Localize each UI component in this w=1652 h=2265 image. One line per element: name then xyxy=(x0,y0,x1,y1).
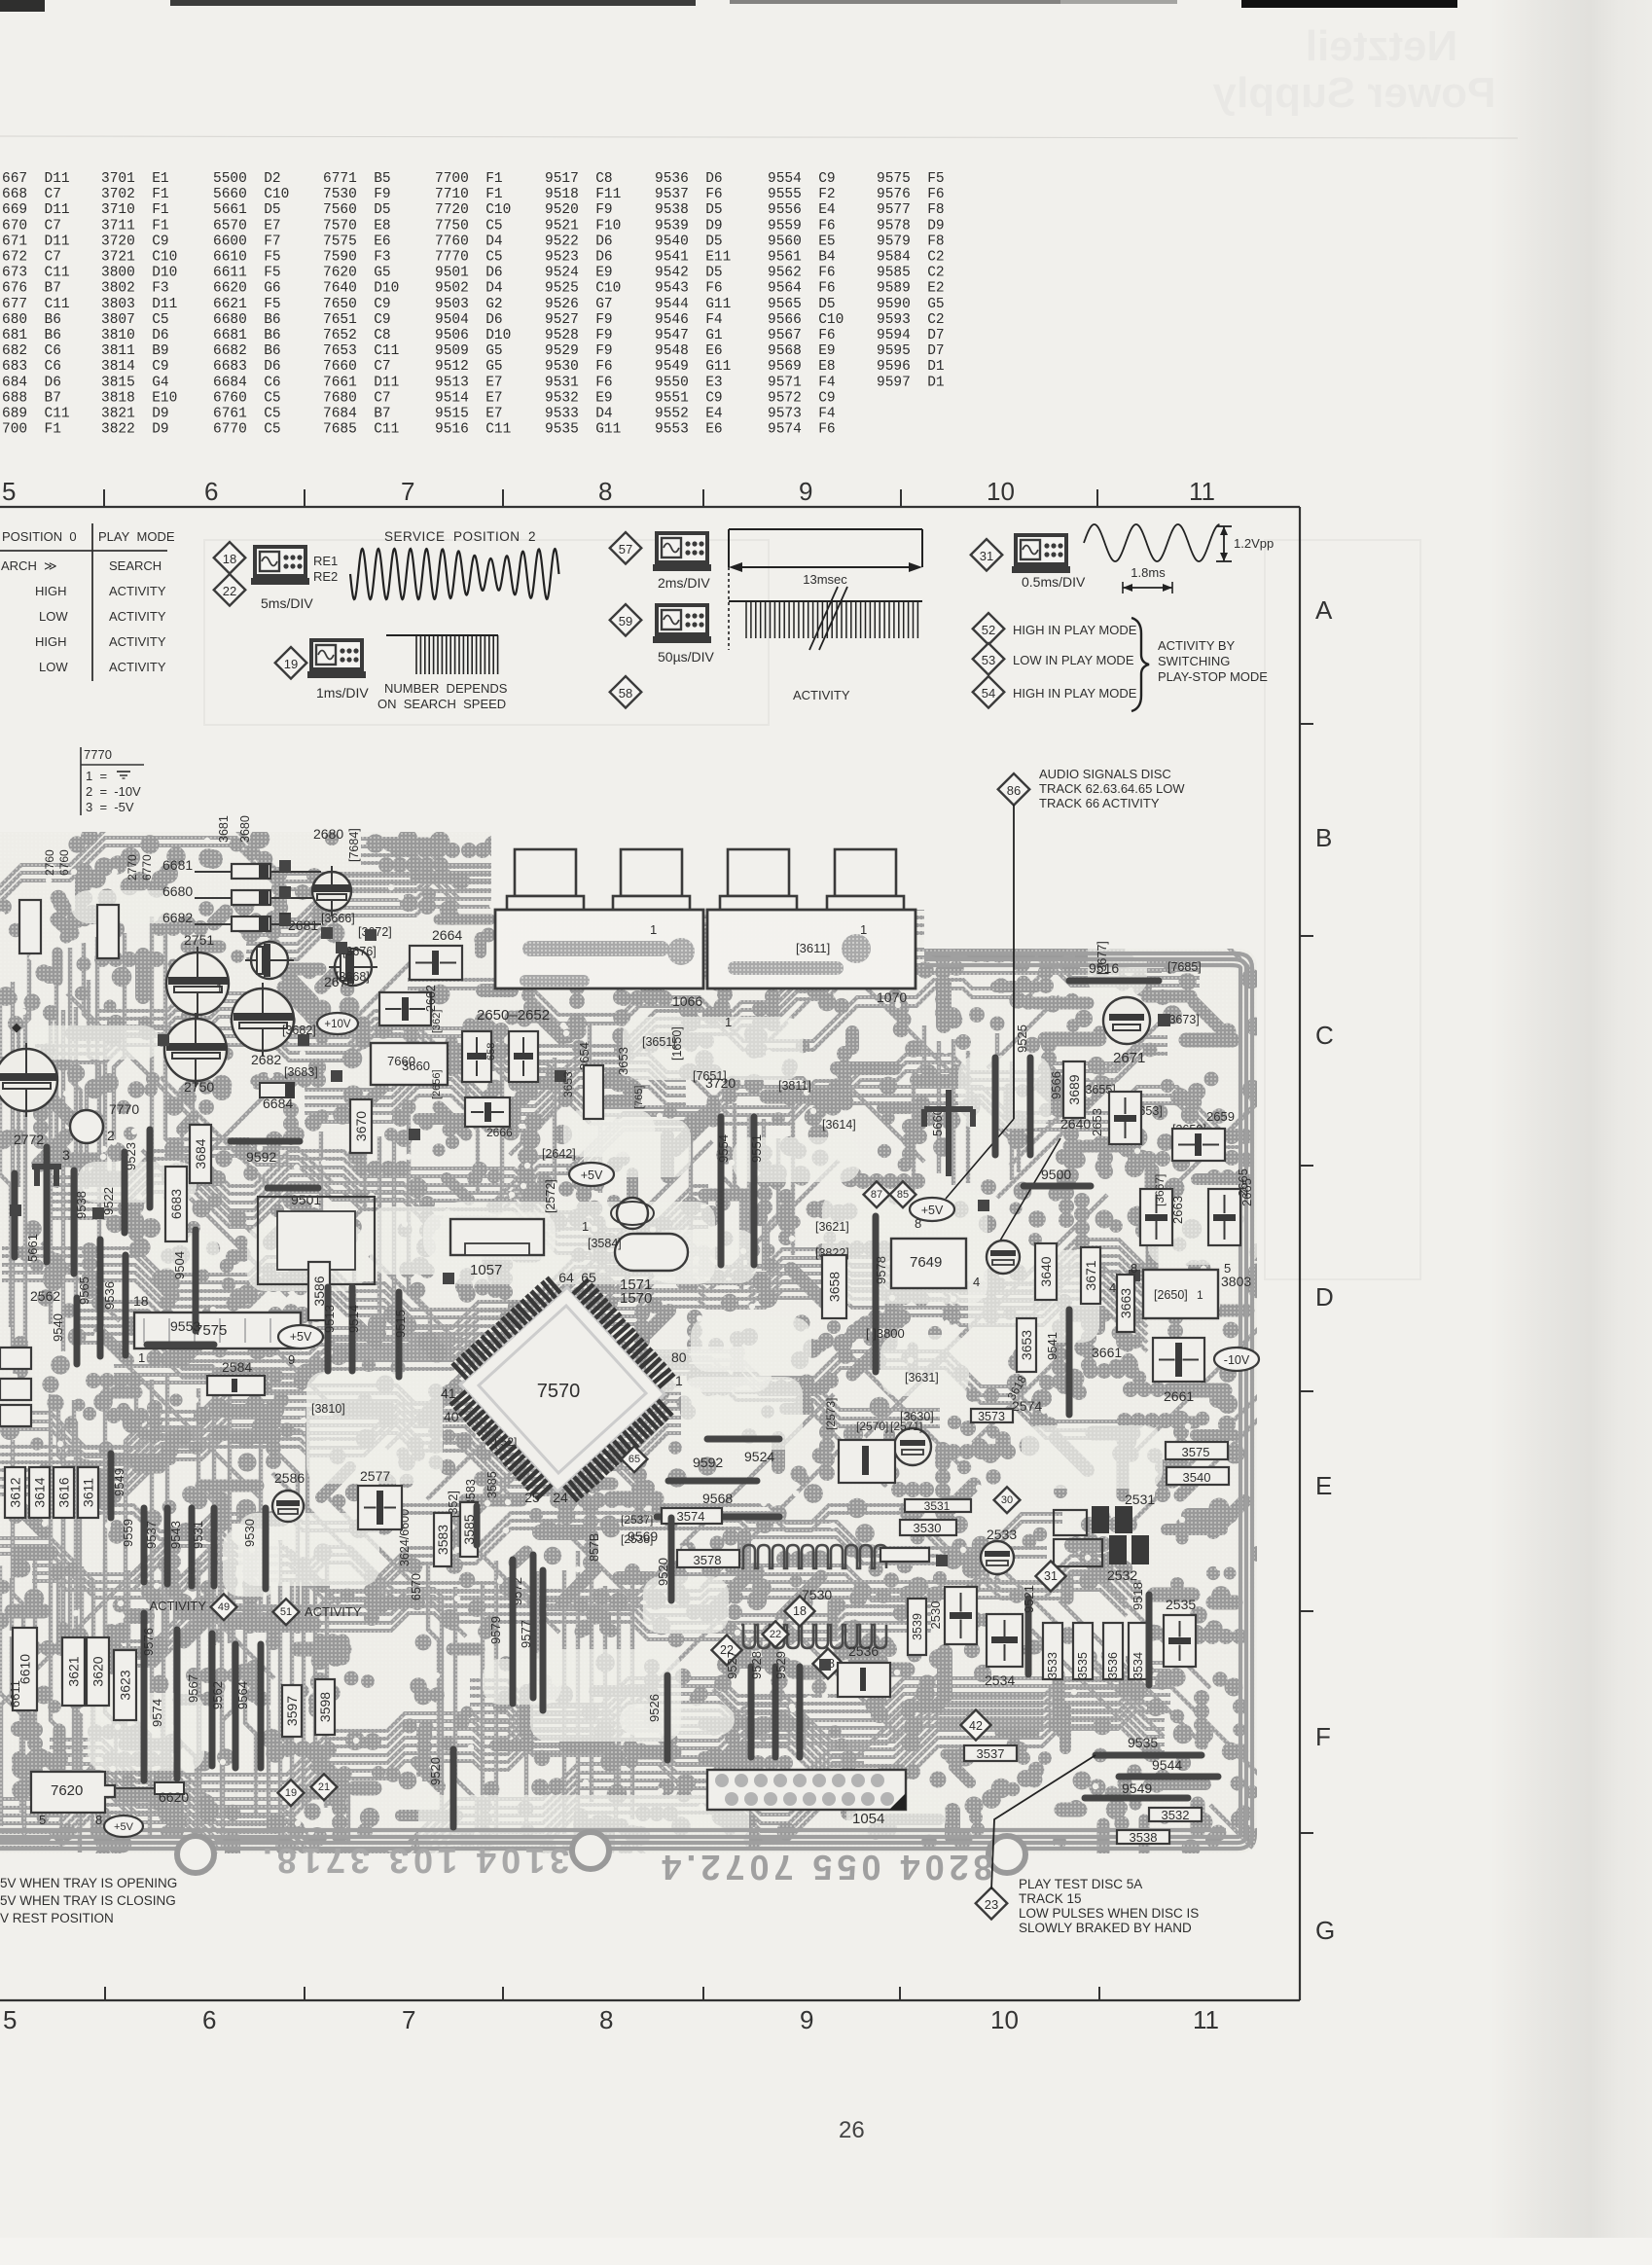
svg-text:2750: 2750 xyxy=(184,1079,214,1095)
svg-text:3530: 3530 xyxy=(914,1521,942,1535)
svg-text:3583: 3583 xyxy=(435,1525,450,1555)
svg-text:[3667]: [3667] xyxy=(1153,1174,1167,1206)
svg-text:6570: 6570 xyxy=(410,1573,423,1600)
svg-text:[3673]: [3673] xyxy=(1166,1013,1200,1026)
svg-text:1: 1 xyxy=(650,922,657,937)
svg-text:9549: 9549 xyxy=(1122,1780,1152,1796)
svg-text:TRACK 15: TRACK 15 xyxy=(1019,1891,1082,1906)
svg-text:2661: 2661 xyxy=(1164,1388,1194,1404)
svg-text:2 = -10V: 2 = -10V xyxy=(86,784,141,799)
svg-text:2671: 2671 xyxy=(1113,1050,1145,1066)
svg-text:[2571]: [2571] xyxy=(890,1420,922,1433)
svg-text:3720: 3720 xyxy=(705,1075,736,1091)
svg-text:9536 D69537 F69538 D59539: 9536 D69537 F69538 D59539 D99540 D59541 … xyxy=(655,171,731,438)
svg-text:RE2: RE2 xyxy=(313,569,338,584)
svg-text:18: 18 xyxy=(223,552,236,566)
svg-text:9554 C99555 F29556 E49559: 9554 C99555 F29556 E49559 F69560 E59561 … xyxy=(768,171,844,438)
svg-text:1: 1 xyxy=(216,981,223,995)
svg-text:6682: 6682 xyxy=(162,910,193,925)
svg-text:2532: 2532 xyxy=(1107,1567,1137,1583)
svg-text:+10V: +10V xyxy=(324,1019,351,1030)
svg-text:+5V: +5V xyxy=(581,1168,603,1182)
svg-text:C: C xyxy=(1315,1021,1334,1050)
svg-text:21: 21 xyxy=(318,1781,330,1793)
svg-text:9579: 9579 xyxy=(488,1616,503,1644)
svg-text:7649: 7649 xyxy=(910,1254,942,1271)
svg-text:5: 5 xyxy=(3,2005,17,2034)
svg-text:[3810]: [3810] xyxy=(311,1402,345,1416)
svg-text:5660: 5660 xyxy=(930,1108,945,1136)
svg-text:ACTIVITY: ACTIVITY xyxy=(109,609,166,624)
svg-text:2665: 2665 xyxy=(1236,1168,1250,1197)
svg-text:41: 41 xyxy=(441,1385,456,1401)
svg-text:1: 1 xyxy=(1197,1288,1203,1302)
svg-text:ACTIVITY: ACTIVITY xyxy=(109,660,166,674)
svg-text:2772: 2772 xyxy=(14,1132,44,1147)
svg-text:3621: 3621 xyxy=(66,1656,82,1686)
svg-text:3663: 3663 xyxy=(1118,1288,1133,1318)
svg-text:65: 65 xyxy=(581,1270,596,1285)
svg-text:51: 51 xyxy=(280,1606,292,1618)
svg-text:9578: 9578 xyxy=(874,1256,888,1284)
svg-text:-10V: -10V xyxy=(1224,1353,1250,1367)
svg-text:1: 1 xyxy=(675,1373,683,1388)
svg-text:9577: 9577 xyxy=(519,1620,533,1648)
svg-text:6760: 6760 xyxy=(57,849,71,876)
svg-text:SEARCH: SEARCH xyxy=(109,558,162,573)
svg-text:[2642]: [2642] xyxy=(542,1147,576,1161)
svg-text:3537: 3537 xyxy=(977,1746,1005,1761)
svg-text:2650–2652: 2650–2652 xyxy=(477,1007,550,1024)
svg-text:7620: 7620 xyxy=(51,1782,83,1799)
svg-text:3803: 3803 xyxy=(1221,1274,1251,1289)
svg-text:19: 19 xyxy=(285,1787,297,1799)
svg-text:52: 52 xyxy=(982,623,995,637)
svg-text:2530: 2530 xyxy=(928,1601,943,1630)
svg-text:LOW IN PLAY MODE: LOW IN PLAY MODE xyxy=(1013,653,1134,667)
svg-text:[2538]: [2538] xyxy=(621,1532,653,1546)
svg-text:2751: 2751 xyxy=(184,932,214,948)
svg-text:2682: 2682 xyxy=(251,1052,281,1067)
svg-text:[765]: [765] xyxy=(633,1086,645,1109)
svg-text:ACTIVITY: ACTIVITY xyxy=(793,688,850,702)
svg-text:667 D11668 C7669 D11670 C7: 667 D11668 C7669 D11670 C7671 D11672 C76… xyxy=(2,171,70,438)
svg-text:HIGH IN PLAY MODE: HIGH IN PLAY MODE xyxy=(1013,623,1137,637)
svg-text:[2572]: [2572] xyxy=(544,1179,557,1213)
svg-text:9518: 9518 xyxy=(1131,1582,1145,1610)
svg-text:9520: 9520 xyxy=(428,1757,443,1785)
svg-text:3661: 3661 xyxy=(1092,1345,1122,1360)
svg-text:9522: 9522 xyxy=(101,1187,116,1215)
svg-text:[3811]: [3811] xyxy=(778,1079,811,1093)
svg-text:[3668]: [3668] xyxy=(336,970,370,984)
svg-text:30: 30 xyxy=(1001,1494,1013,1506)
svg-text:49: 49 xyxy=(218,1601,230,1613)
svg-text:LOW: LOW xyxy=(39,660,68,674)
svg-text:HIGH: HIGH xyxy=(35,634,67,649)
svg-text:2562: 2562 xyxy=(30,1288,60,1304)
svg-text:9592: 9592 xyxy=(246,1149,276,1165)
svg-text:[3614]: [3614] xyxy=(822,1118,856,1132)
svg-text:3585: 3585 xyxy=(485,1471,499,1498)
svg-text:18: 18 xyxy=(133,1293,149,1309)
svg-text:E: E xyxy=(1315,1471,1332,1500)
svg-text:LOW PULSES WHEN DISC IS: LOW PULSES WHEN DISC IS xyxy=(1019,1906,1199,1921)
svg-text:3614: 3614 xyxy=(32,1477,48,1507)
svg-text:3534: 3534 xyxy=(1131,1652,1145,1679)
svg-text:3536: 3536 xyxy=(1106,1652,1120,1679)
svg-text:7: 7 xyxy=(402,2005,415,2034)
svg-text:3598: 3598 xyxy=(317,1692,333,1722)
svg-text:9553: 9553 xyxy=(170,1318,200,1334)
svg-text:1: 1 xyxy=(860,922,867,937)
svg-text:ACTIVITY: ACTIVITY xyxy=(305,1604,362,1619)
svg-text:7700 F17710 F17720 C107750: 7700 F17710 F17720 C107750 C57760 D47770… xyxy=(435,171,511,438)
svg-text:23: 23 xyxy=(985,1897,998,1912)
svg-text:9537: 9537 xyxy=(144,1521,159,1549)
svg-text:[2570]: [2570] xyxy=(856,1420,888,1433)
svg-text:ACTIVITY: ACTIVITY xyxy=(109,584,166,598)
svg-text:6610: 6610 xyxy=(18,1654,33,1684)
svg-text:Netzteil: Netzteil xyxy=(1306,22,1457,70)
svg-text:A: A xyxy=(1315,595,1333,625)
svg-text:Power Supply: Power Supply xyxy=(1212,69,1495,117)
svg-text:[2656]: [2656] xyxy=(431,1069,443,1099)
svg-text:1 =: 1 = xyxy=(86,769,107,783)
svg-text:SLOWLY BRAKED BY HAND: SLOWLY BRAKED BY HAND xyxy=(1019,1921,1192,1935)
svg-text:9536: 9536 xyxy=(102,1281,117,1310)
svg-text:3611: 3611 xyxy=(81,1478,96,1507)
svg-text:2536: 2536 xyxy=(848,1643,879,1659)
svg-text:6683: 6683 xyxy=(168,1189,184,1219)
svg-text:9564: 9564 xyxy=(235,1681,250,1709)
svg-text:54: 54 xyxy=(982,686,995,701)
svg-text:3671: 3671 xyxy=(1083,1260,1098,1290)
svg-text:4: 4 xyxy=(1109,1280,1116,1295)
svg-text:42: 42 xyxy=(969,1719,983,1733)
svg-text:59: 59 xyxy=(619,614,632,629)
svg-text:2659: 2659 xyxy=(1206,1109,1235,1124)
svg-text:9517 C89518 F119520 F99521: 9517 C89518 F119520 F99521 F109522 D6952… xyxy=(545,171,621,438)
svg-text:1: 1 xyxy=(138,1350,145,1365)
svg-text:2663: 2663 xyxy=(1170,1196,1185,1224)
svg-text:24: 24 xyxy=(553,1490,568,1505)
svg-text:857B: 857B xyxy=(588,1533,601,1562)
svg-text:5500 D25660 C105661 D56570: 5500 D25660 C105661 D56570 E76600 F76610… xyxy=(213,171,289,438)
svg-text:[362]: [362] xyxy=(431,1010,443,1033)
svg-text:D: D xyxy=(1315,1282,1334,1312)
svg-text:3612: 3612 xyxy=(8,1477,23,1507)
svg-text:LOW: LOW xyxy=(39,609,68,624)
svg-text:7: 7 xyxy=(401,477,414,506)
svg-text:6771 B57530 F97560 D57570: 6771 B57530 F97560 D57570 E87575 E67590 … xyxy=(323,171,399,438)
svg-text:658: 658 xyxy=(485,1043,497,1061)
svg-text:F: F xyxy=(1315,1722,1331,1751)
svg-text:0.5ms/DIV: 0.5ms/DIV xyxy=(1022,574,1086,590)
svg-text:9568: 9568 xyxy=(702,1491,733,1506)
svg-text:9538: 9538 xyxy=(74,1191,89,1219)
svg-text:9567: 9567 xyxy=(186,1674,200,1703)
svg-text:2662: 2662 xyxy=(424,985,438,1012)
svg-text:+5V: +5V xyxy=(290,1330,312,1344)
svg-text:8: 8 xyxy=(95,1813,102,1827)
svg-text:9504: 9504 xyxy=(172,1251,187,1279)
svg-text:9514: 9514 xyxy=(346,1305,361,1333)
svg-text:V REST POSITION: V REST POSITION xyxy=(0,1911,114,1925)
svg-text:57: 57 xyxy=(619,542,632,557)
svg-text:3680: 3680 xyxy=(238,815,252,843)
svg-text:◆: ◆ xyxy=(12,1020,21,1034)
svg-text:[2573]: [2573] xyxy=(824,1398,838,1430)
svg-text:3575: 3575 xyxy=(1182,1445,1210,1459)
svg-text:9501: 9501 xyxy=(291,1192,321,1207)
svg-text:6: 6 xyxy=(202,2005,216,2034)
svg-text:11: 11 xyxy=(1189,477,1215,506)
svg-text:9540: 9540 xyxy=(51,1313,65,1342)
svg-text:22: 22 xyxy=(223,584,236,598)
svg-text:[ 52]: [ 52] xyxy=(494,1435,517,1449)
svg-text:HIGH IN PLAY MODE: HIGH IN PLAY MODE xyxy=(1013,686,1137,701)
svg-text:7530: 7530 xyxy=(802,1587,832,1602)
svg-text:9513: 9513 xyxy=(322,1305,337,1333)
svg-text:9: 9 xyxy=(799,477,812,506)
svg-text:1066: 1066 xyxy=(672,993,702,1009)
svg-text:[7685]: [7685] xyxy=(1167,960,1202,974)
svg-text:9529: 9529 xyxy=(773,1651,788,1679)
svg-text:9574: 9574 xyxy=(150,1699,164,1727)
svg-text:AUDIO SIGNALS DISC: AUDIO SIGNALS DISC xyxy=(1039,767,1171,781)
svg-text:3 = -5V: 3 = -5V xyxy=(86,800,134,814)
svg-text:2760: 2760 xyxy=(43,849,56,876)
svg-text:1057: 1057 xyxy=(470,1262,502,1278)
svg-text:3531: 3531 xyxy=(924,1499,951,1513)
svg-text:1570: 1570 xyxy=(620,1290,652,1307)
svg-text:2681: 2681 xyxy=(288,917,318,933)
svg-text:9515: 9515 xyxy=(393,1310,408,1338)
svg-text:[3611]: [3611] xyxy=(796,941,830,955)
svg-text:3660: 3660 xyxy=(402,1059,430,1073)
svg-text:TRACK 62.63.64.65 LOW: TRACK 62.63.64.65 LOW xyxy=(1039,781,1185,796)
svg-text:3681: 3681 xyxy=(217,815,231,843)
svg-text:9543: 9543 xyxy=(168,1521,183,1549)
svg-text:ACTIVITY BY: ACTIVITY BY xyxy=(1158,638,1236,653)
svg-text:19: 19 xyxy=(284,657,298,671)
svg-text:3597: 3597 xyxy=(284,1696,300,1726)
svg-text:B: B xyxy=(1315,823,1332,852)
svg-text:1: 1 xyxy=(582,1219,589,1234)
svg-text:26: 26 xyxy=(839,2117,865,2143)
svg-text:22: 22 xyxy=(770,1629,781,1640)
svg-text:2533: 2533 xyxy=(987,1527,1017,1542)
svg-text:SWITCHING: SWITCHING xyxy=(1158,654,1230,668)
svg-text:3701 E13702 F13710 F13711: 3701 E13702 F13710 F13711 F13720 C93721 … xyxy=(101,171,177,438)
svg-text:+5V: +5V xyxy=(921,1204,944,1217)
svg-text:50µs/DIV: 50µs/DIV xyxy=(658,649,715,665)
svg-text:+5V: +5V xyxy=(114,1821,134,1833)
svg-text:5V WHEN TRAY IS OPENING: 5V WHEN TRAY IS OPENING xyxy=(0,1876,177,1890)
svg-text:6684: 6684 xyxy=(263,1096,293,1111)
svg-text:18: 18 xyxy=(793,1604,807,1618)
svg-text:3540: 3540 xyxy=(1183,1470,1211,1485)
svg-text:25: 25 xyxy=(524,1490,540,1505)
svg-text:3535: 3535 xyxy=(1076,1652,1090,1679)
svg-text:9: 9 xyxy=(800,2005,813,2034)
svg-text:87: 87 xyxy=(871,1189,882,1201)
svg-text:2770: 2770 xyxy=(126,854,139,881)
svg-text:64: 64 xyxy=(558,1270,574,1285)
svg-text:13msec: 13msec xyxy=(803,572,847,587)
svg-text:[2537]: [2537] xyxy=(621,1513,653,1527)
svg-text:9530: 9530 xyxy=(242,1519,257,1547)
svg-text:3104 103 3718.: 3104 103 3718. xyxy=(258,1841,569,1881)
svg-text:2: 2 xyxy=(107,1128,115,1143)
svg-text:3616: 3616 xyxy=(56,1477,72,1507)
svg-text:3: 3 xyxy=(62,1147,70,1163)
svg-text:9: 9 xyxy=(288,1352,295,1367)
svg-text:[1650]: [1650] xyxy=(670,1026,684,1061)
svg-text:3623: 3623 xyxy=(118,1670,133,1700)
svg-text:9531: 9531 xyxy=(191,1521,205,1549)
svg-text:8: 8 xyxy=(599,2005,613,2034)
svg-text:3533: 3533 xyxy=(1046,1652,1059,1679)
svg-text:2ms/DIV: 2ms/DIV xyxy=(658,575,710,591)
svg-text:80: 80 xyxy=(671,1349,687,1365)
svg-text:9527: 9527 xyxy=(725,1651,739,1679)
svg-text:9562: 9562 xyxy=(210,1681,225,1709)
svg-text:9524: 9524 xyxy=(744,1449,774,1464)
svg-text:PLAY MODE: PLAY MODE xyxy=(98,529,175,544)
svg-text:[3677]: [3677] xyxy=(1095,941,1109,975)
svg-text:9565: 9565 xyxy=(77,1276,91,1305)
svg-text:9566: 9566 xyxy=(1049,1071,1063,1099)
svg-text:10: 10 xyxy=(987,477,1015,506)
svg-text:6680: 6680 xyxy=(162,883,193,899)
svg-text:53: 53 xyxy=(982,653,995,667)
svg-text:9544: 9544 xyxy=(1152,1757,1182,1773)
svg-text:3539: 3539 xyxy=(911,1613,924,1640)
svg-text:3653: 3653 xyxy=(1019,1330,1034,1360)
svg-text:8: 8 xyxy=(1131,1261,1137,1276)
svg-text:POSITION 0: POSITION 0 xyxy=(2,529,77,544)
svg-text:9559: 9559 xyxy=(121,1519,135,1547)
svg-text:1070: 1070 xyxy=(877,989,907,1005)
svg-text:1ms/DIV: 1ms/DIV xyxy=(316,685,369,701)
svg-text:2666: 2666 xyxy=(486,1126,513,1139)
svg-text:3653: 3653 xyxy=(616,1047,630,1075)
svg-text:3574: 3574 xyxy=(677,1509,705,1524)
svg-text:31: 31 xyxy=(980,549,993,563)
svg-text:2586: 2586 xyxy=(274,1470,305,1486)
svg-text:3532: 3532 xyxy=(1162,1808,1190,1822)
svg-text:PLAY-STOP MODE: PLAY-STOP MODE xyxy=(1158,669,1268,684)
svg-text:7770: 7770 xyxy=(109,1101,139,1117)
svg-text:9528: 9528 xyxy=(749,1651,764,1679)
svg-text:2534: 2534 xyxy=(985,1672,1015,1688)
svg-text:2664: 2664 xyxy=(432,927,462,943)
svg-text:2680: 2680 xyxy=(313,826,343,842)
svg-text:9535: 9535 xyxy=(1128,1735,1158,1750)
svg-text:SERVICE POSITION 2: SERVICE POSITION 2 xyxy=(384,529,536,544)
svg-text:3658: 3658 xyxy=(827,1272,843,1302)
svg-text:ARCH ≫: ARCH ≫ xyxy=(1,558,57,573)
svg-text:6611: 6611 xyxy=(8,1680,22,1708)
svg-text:9551: 9551 xyxy=(749,1134,764,1163)
svg-text:[3666]: [3666] xyxy=(321,912,355,925)
svg-text:9592: 9592 xyxy=(693,1455,723,1470)
svg-text:2577: 2577 xyxy=(360,1468,390,1484)
svg-text:NUMBER DEPENDS: NUMBER DEPENDS xyxy=(384,681,508,696)
svg-text:9541: 9541 xyxy=(1045,1332,1059,1360)
svg-text:11: 11 xyxy=(1193,2005,1219,2034)
svg-text:3670: 3670 xyxy=(353,1111,369,1141)
svg-text:58: 58 xyxy=(619,686,632,701)
svg-text:3578: 3578 xyxy=(694,1553,722,1567)
svg-text:1.2Vpp: 1.2Vpp xyxy=(1234,536,1274,551)
svg-text:ACTIVITY: ACTIVITY xyxy=(149,1599,206,1613)
svg-text:6681: 6681 xyxy=(162,857,193,873)
svg-text:5661: 5661 xyxy=(25,1234,40,1262)
svg-text:1: 1 xyxy=(725,1015,732,1029)
svg-text:[7684]: [7684] xyxy=(347,828,361,862)
svg-text:6620: 6620 xyxy=(159,1789,189,1805)
svg-text:85: 85 xyxy=(897,1189,909,1201)
svg-text:9576: 9576 xyxy=(141,1628,156,1656)
svg-text:3653: 3653 xyxy=(561,1071,575,1097)
svg-text:[3676]: [3676] xyxy=(342,945,377,958)
svg-text:2584: 2584 xyxy=(222,1359,252,1375)
svg-text:3573: 3573 xyxy=(978,1410,1005,1423)
svg-text:[2650]: [2650] xyxy=(1154,1288,1188,1302)
svg-text:9554: 9554 xyxy=(716,1134,731,1163)
svg-text:3689: 3689 xyxy=(1066,1074,1082,1104)
svg-text:10: 10 xyxy=(990,2005,1019,2034)
svg-text:9500: 9500 xyxy=(1041,1167,1071,1182)
svg-text:HIGH: HIGH xyxy=(35,584,67,598)
svg-text:[3683]: [3683] xyxy=(284,1065,318,1079)
svg-text:6: 6 xyxy=(204,477,218,506)
svg-text:5: 5 xyxy=(39,1813,46,1827)
svg-text:ACTIVITY: ACTIVITY xyxy=(109,634,166,649)
svg-text:PLAY TEST DISC 5A: PLAY TEST DISC 5A xyxy=(1019,1877,1142,1891)
svg-text:7770: 7770 xyxy=(84,747,112,762)
svg-text:4: 4 xyxy=(973,1275,980,1289)
svg-text:1054: 1054 xyxy=(852,1811,884,1827)
svg-text:3620: 3620 xyxy=(90,1656,106,1686)
svg-text:6770: 6770 xyxy=(140,854,154,881)
svg-text:2653: 2653 xyxy=(1090,1108,1104,1136)
svg-text:2535: 2535 xyxy=(1166,1597,1196,1612)
svg-text:[3621]: [3621] xyxy=(815,1220,849,1234)
svg-text:[ ]3800: [ ]3800 xyxy=(866,1326,905,1341)
svg-text:[3584]: [3584] xyxy=(588,1237,622,1250)
svg-text:G: G xyxy=(1315,1916,1335,1945)
svg-text:9526: 9526 xyxy=(647,1694,662,1722)
svg-text:9525: 9525 xyxy=(1015,1025,1029,1053)
svg-text:5: 5 xyxy=(2,477,16,506)
svg-text:8: 8 xyxy=(598,477,612,506)
svg-text:TRACK 66 ACTIVITY: TRACK 66 ACTIVITY xyxy=(1039,796,1160,810)
svg-text:5ms/DIV: 5ms/DIV xyxy=(261,595,313,611)
svg-text:9549: 9549 xyxy=(112,1468,126,1496)
svg-text:5V WHEN TRAY IS CLOSING: 5V WHEN TRAY IS CLOSING xyxy=(0,1893,176,1908)
svg-text:3538: 3538 xyxy=(1130,1830,1158,1845)
svg-text:3640: 3640 xyxy=(1038,1256,1054,1286)
svg-text:RE1: RE1 xyxy=(313,554,338,568)
svg-text:ON SEARCH SPEED: ON SEARCH SPEED xyxy=(377,697,506,711)
svg-text:31: 31 xyxy=(1044,1569,1058,1583)
svg-text:1.8ms: 1.8ms xyxy=(1131,565,1166,580)
svg-text:9521: 9521 xyxy=(1022,1585,1036,1613)
